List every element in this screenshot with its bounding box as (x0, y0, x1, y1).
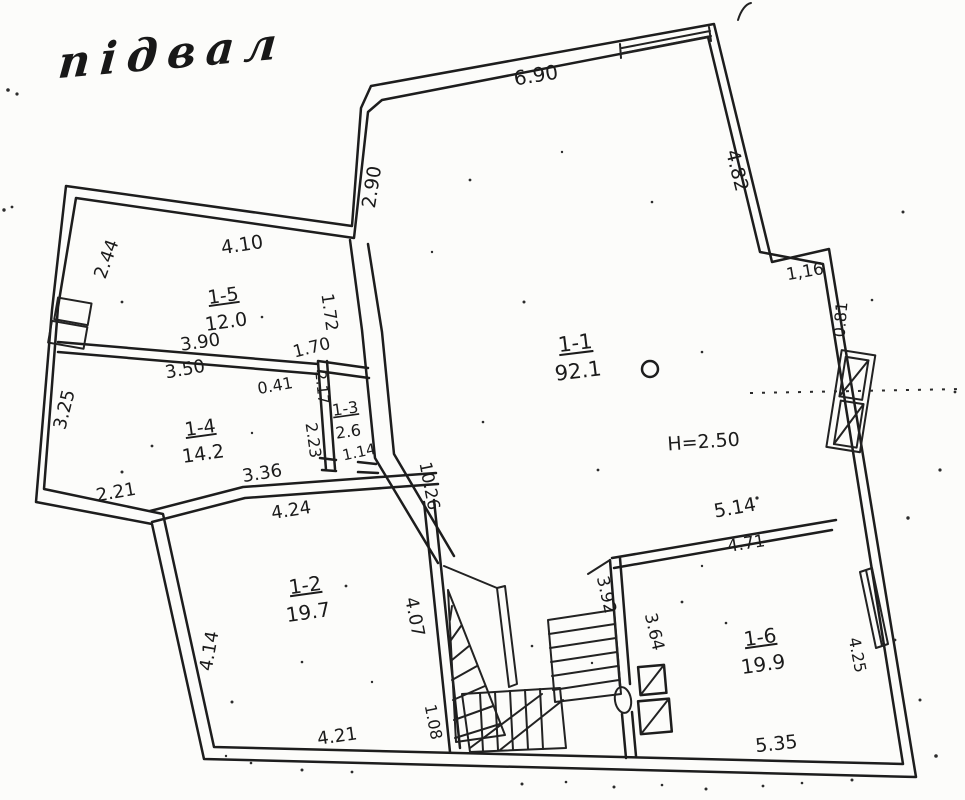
dimension-label: 0.41 (256, 373, 294, 398)
room-id-label: 1-4 (183, 415, 217, 441)
dimension-label: 5.14 (712, 494, 757, 523)
dimension-label: 1.72 (316, 292, 341, 332)
scan-noise (2, 88, 956, 790)
dimension-label: 10.26 (414, 460, 443, 512)
column-symbol (642, 361, 658, 377)
room-area-label: 12.0 (204, 308, 249, 336)
dimension-label: 4.07 (400, 595, 428, 638)
door-leaf-symbol (613, 686, 633, 714)
room-id-label: 1-1 (557, 329, 594, 357)
dimension-label: 3.50 (163, 356, 206, 384)
room-id-label: 1-6 (742, 623, 778, 651)
dimension-label: 3.64 (640, 611, 668, 652)
room-area-label: 92.1 (553, 356, 602, 386)
dimension-label: 1.70 (291, 334, 333, 363)
dimension-label: 4.25 (845, 636, 870, 675)
room-area-label: 2.6 (334, 420, 362, 442)
room-id-label: 1-5 (206, 283, 240, 309)
dimension-label: 0.81 (830, 301, 852, 338)
floor-plan-drawing: 6.902.904.821,160.814.102.441.723.903.50… (0, 0, 965, 800)
dimension-label: 4.82 (721, 147, 753, 193)
dimension-label: 3.36 (241, 460, 284, 487)
dimension-label: 3.92 (592, 574, 620, 615)
stair-divider (497, 586, 517, 687)
room-area-label: 14.2 (181, 440, 226, 468)
dimension-label: 4.71 (726, 531, 767, 557)
room-id-label: 1-3 (331, 397, 360, 419)
dimension-label: 6.90 (512, 60, 560, 91)
dimension-label: 2.23 (302, 421, 326, 459)
dimension-label: 2.17 (311, 370, 332, 405)
dimension-label: 2.21 (94, 479, 137, 507)
room-id-label: 1-2 (287, 571, 323, 599)
dimension-label: 3.25 (50, 388, 80, 432)
dimension-label: 4.21 (316, 723, 359, 749)
room-area-label: 19.9 (739, 649, 786, 679)
dimension-label: 1,16 (785, 259, 826, 285)
dimension-label: 5.35 (754, 731, 798, 757)
staircase (448, 586, 621, 752)
dimension-label: 4.14 (196, 629, 224, 672)
corner-tick-mark (738, 3, 751, 20)
dimension-label: 2.44 (90, 237, 123, 282)
height-note: Н=2.50 (667, 429, 741, 456)
scanned-floor-plan: підвал (0, 0, 965, 800)
dimension-label: 1.14 (341, 440, 377, 465)
room-area-label: 19.7 (284, 597, 331, 627)
datum-dotted-line (750, 389, 962, 393)
dimension-label: 1.08 (421, 703, 446, 742)
dimension-label: 4.10 (219, 231, 264, 259)
furnace-symbols (635, 665, 672, 734)
dimension-label: 4.24 (270, 497, 313, 524)
